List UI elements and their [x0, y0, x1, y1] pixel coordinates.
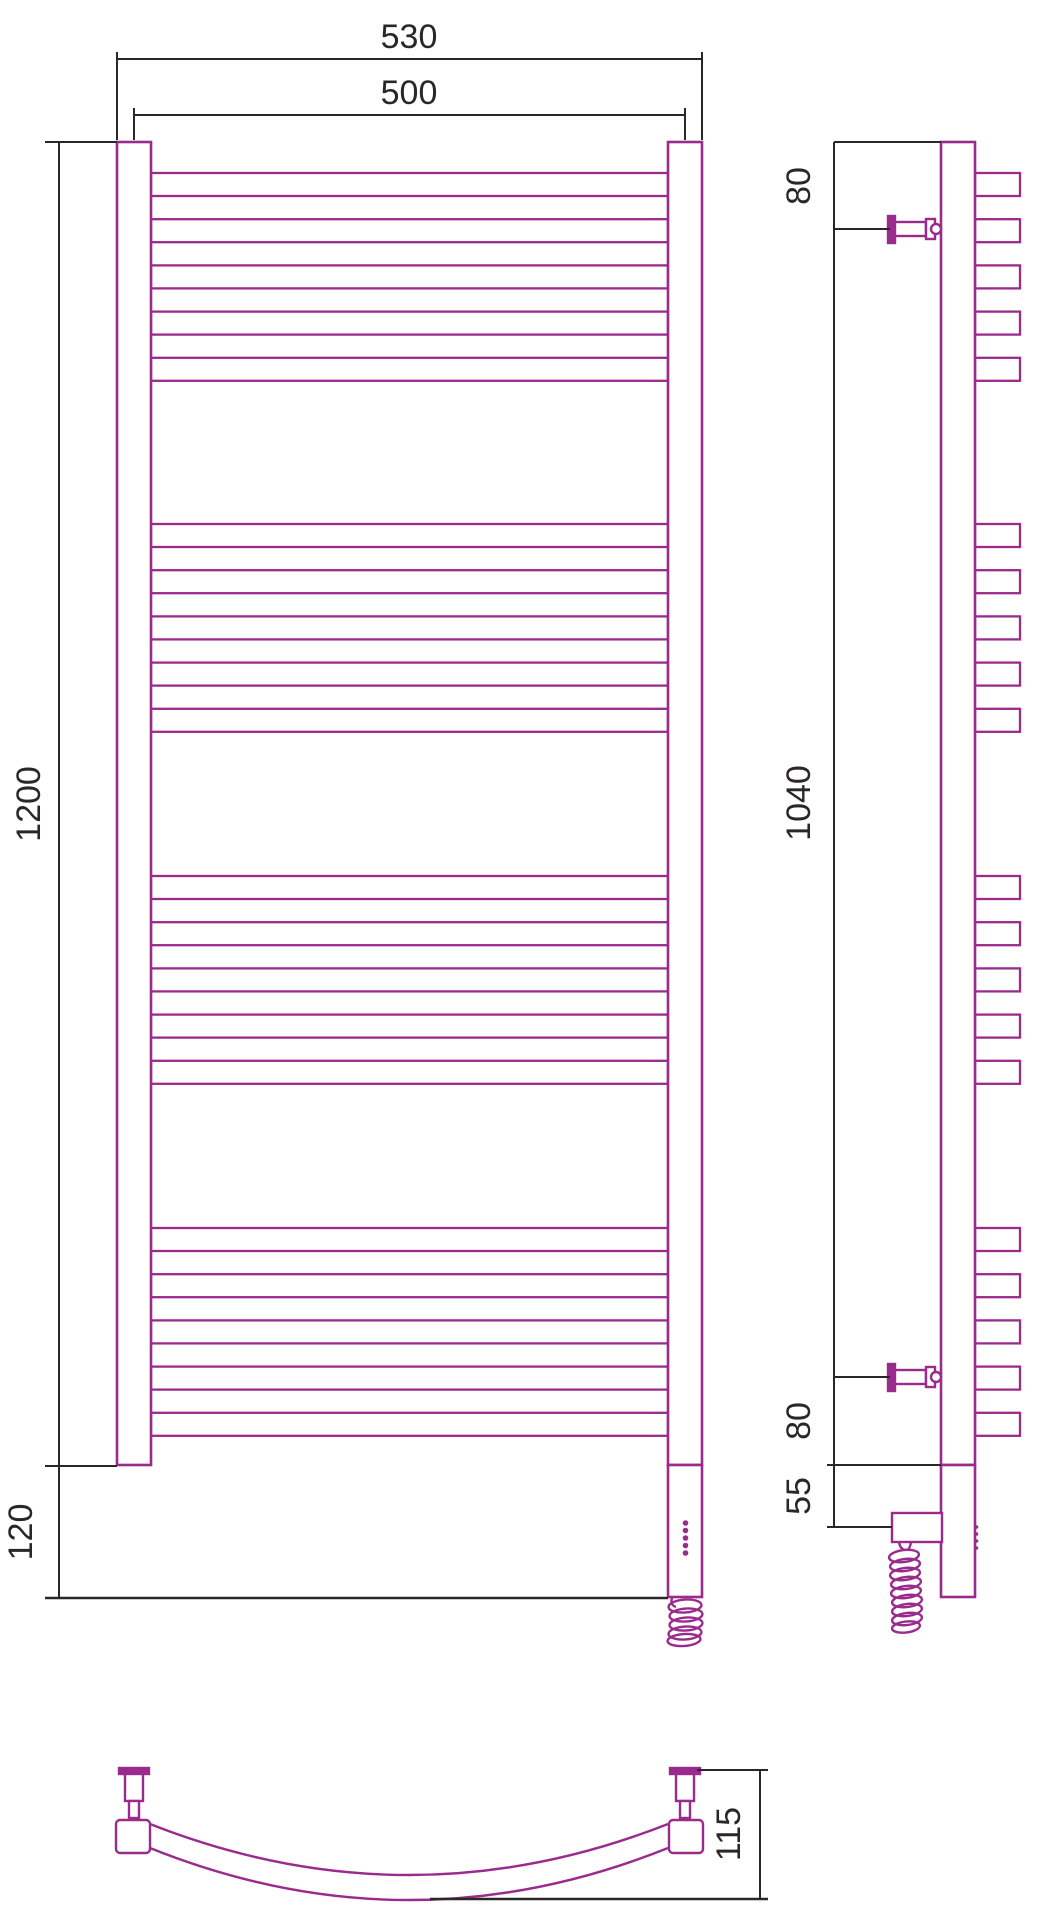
front-rung	[151, 876, 668, 899]
front-rung	[151, 709, 668, 732]
side-rung-stub	[975, 219, 1020, 242]
front-rung	[151, 570, 668, 593]
side-rung-stub	[975, 570, 1020, 593]
dim-label-55: 55	[780, 1477, 818, 1515]
side-rung-stub	[975, 1274, 1020, 1297]
side-rung-stub	[975, 1015, 1020, 1038]
side-rung-stub	[975, 709, 1020, 732]
side-view	[888, 142, 1020, 1634]
front-rung	[151, 663, 668, 686]
front-view	[117, 142, 703, 1647]
side-plug-box	[892, 1513, 942, 1542]
front-rungs	[151, 173, 668, 1436]
side-rung-stub	[975, 312, 1020, 335]
dim-label-80-bottom: 80	[780, 1402, 818, 1440]
side-rung-stub	[975, 663, 1020, 686]
side-rung-stub	[975, 968, 1020, 991]
side-rung-stub	[975, 1061, 1020, 1084]
towel-rail-technical-drawing: 530 500 1200 120 80 1040 80 55 115	[0, 0, 1041, 1920]
dim-label-120: 120	[2, 1504, 40, 1561]
side-rung-stub	[975, 173, 1020, 196]
side-top-bracket	[888, 216, 941, 243]
bottom-right-collector	[669, 1768, 703, 1853]
dim-label-1200: 1200	[10, 766, 48, 842]
bottom-view	[116, 1768, 703, 1900]
side-heating-element	[941, 1465, 975, 1597]
front-rung	[151, 358, 668, 381]
side-rung-stub	[975, 1228, 1020, 1251]
dim-label-80-top: 80	[780, 167, 818, 205]
dimensions	[45, 52, 941, 1899]
front-rung	[151, 1367, 668, 1390]
front-right-collector	[668, 142, 702, 1465]
side-bottom-bracket	[888, 1364, 941, 1391]
front-rung	[151, 616, 668, 639]
side-rung-stub	[975, 876, 1020, 899]
side-rung-stub	[975, 1367, 1020, 1390]
side-rung-stubs	[975, 173, 1020, 1436]
front-rung	[151, 1274, 668, 1297]
side-rung-stub	[975, 616, 1020, 639]
side-collector	[941, 142, 975, 1465]
front-rung	[151, 265, 668, 288]
front-left-collector	[117, 142, 151, 1465]
front-rung	[151, 922, 668, 945]
side-rung-stub	[975, 922, 1020, 945]
dim-label-1040: 1040	[780, 765, 818, 841]
bottom-left-collector	[116, 1768, 150, 1853]
front-rung	[151, 312, 668, 335]
front-spiral-cable	[667, 1598, 703, 1647]
front-rung	[151, 219, 668, 242]
front-rung	[151, 1413, 668, 1436]
front-rung	[151, 968, 668, 991]
dim-label-530: 530	[381, 18, 438, 56]
side-rung-stub	[975, 265, 1020, 288]
side-rung-stub	[975, 1320, 1020, 1343]
front-rung	[151, 524, 668, 547]
side-rung-stub	[975, 358, 1020, 381]
front-rung	[151, 1061, 668, 1084]
side-rung-stub	[975, 1413, 1020, 1436]
dim-label-115: 115	[710, 1807, 748, 1861]
front-rung	[151, 1228, 668, 1251]
front-rung	[151, 1015, 668, 1038]
bottom-arc-tube	[150, 1824, 668, 1900]
side-spiral-cable	[888, 1542, 922, 1634]
front-rung	[151, 173, 668, 196]
side-rung-stub	[975, 524, 1020, 547]
dim-label-500: 500	[381, 74, 438, 112]
front-rung	[151, 1320, 668, 1343]
